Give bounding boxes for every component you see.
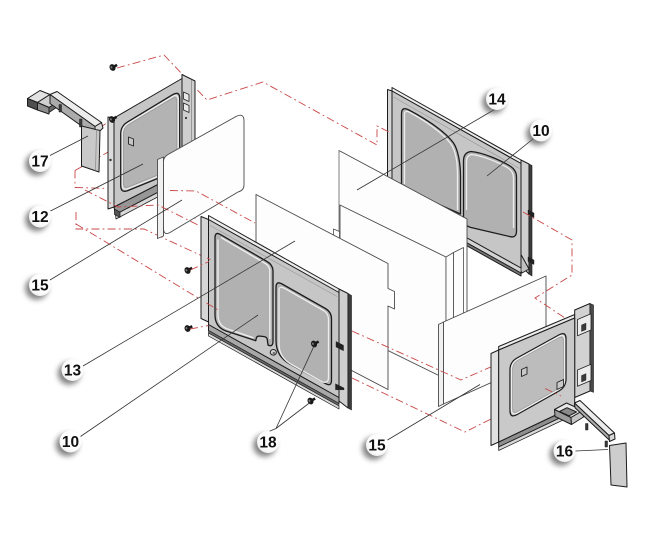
svg-text:17: 17 xyxy=(31,153,48,170)
svg-text:15: 15 xyxy=(368,437,386,454)
svg-text:13: 13 xyxy=(64,362,82,379)
svg-text:16: 16 xyxy=(556,443,574,460)
svg-text:12: 12 xyxy=(31,209,48,226)
svg-text:10: 10 xyxy=(532,123,549,140)
svg-text:15: 15 xyxy=(31,277,49,294)
svg-text:10: 10 xyxy=(62,434,79,451)
svg-text:18: 18 xyxy=(259,434,277,451)
svg-text:14: 14 xyxy=(488,91,506,108)
